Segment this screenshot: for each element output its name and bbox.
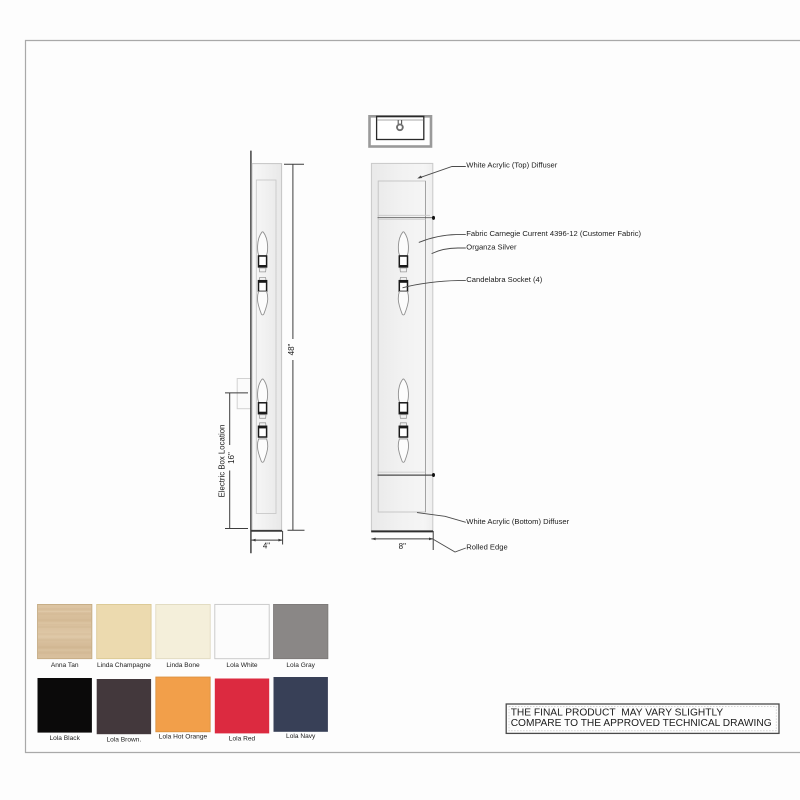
svg-text:Candelabra Socket (4): Candelabra Socket (4) (466, 275, 542, 284)
svg-text:Rolled Edge: Rolled Edge (466, 542, 507, 551)
svg-text:Anna Tan: Anna Tan (51, 662, 79, 669)
svg-text:COMPARE TO THE APPROVED TECHNI: COMPARE TO THE APPROVED TECHNICAL DRAWIN… (511, 718, 772, 729)
svg-text:Lola Black: Lola Black (49, 735, 80, 742)
svg-text:Lola White: Lola White (226, 662, 257, 669)
svg-text:Linda Champagne: Linda Champagne (97, 662, 151, 669)
svg-text:THE FINAL PRODUCT MAY VARY SL: THE FINAL PRODUCT MAY VARY SLIGHTLY (511, 708, 724, 719)
svg-text:Lola Navy: Lola Navy (286, 733, 316, 740)
svg-text:Fabric Carnegie Current 4396-1: Fabric Carnegie Current 4396-12 (Custome… (466, 229, 641, 238)
svg-text:48": 48" (287, 343, 296, 355)
svg-text:Lola Gray: Lola Gray (286, 662, 315, 669)
svg-text:Linda Bone: Linda Bone (166, 662, 200, 669)
svg-text:White Acrylic (Bottom) Diffuse: White Acrylic (Bottom) Diffuser (466, 517, 569, 526)
svg-text:Organza Silver: Organza Silver (466, 243, 517, 252)
svg-text:White Acrylic (Top) Diffuser: White Acrylic (Top) Diffuser (466, 160, 557, 169)
svg-text:16": 16" (227, 452, 236, 464)
svg-text:Lola Red: Lola Red (229, 735, 256, 742)
svg-text:4": 4" (263, 542, 270, 551)
svg-text:Electric Box Location: Electric Box Location (217, 425, 226, 498)
svg-text:Lola Hot Orange: Lola Hot Orange (159, 733, 208, 740)
svg-text:8": 8" (399, 542, 406, 551)
svg-text:Lola Brown.: Lola Brown. (106, 736, 141, 743)
